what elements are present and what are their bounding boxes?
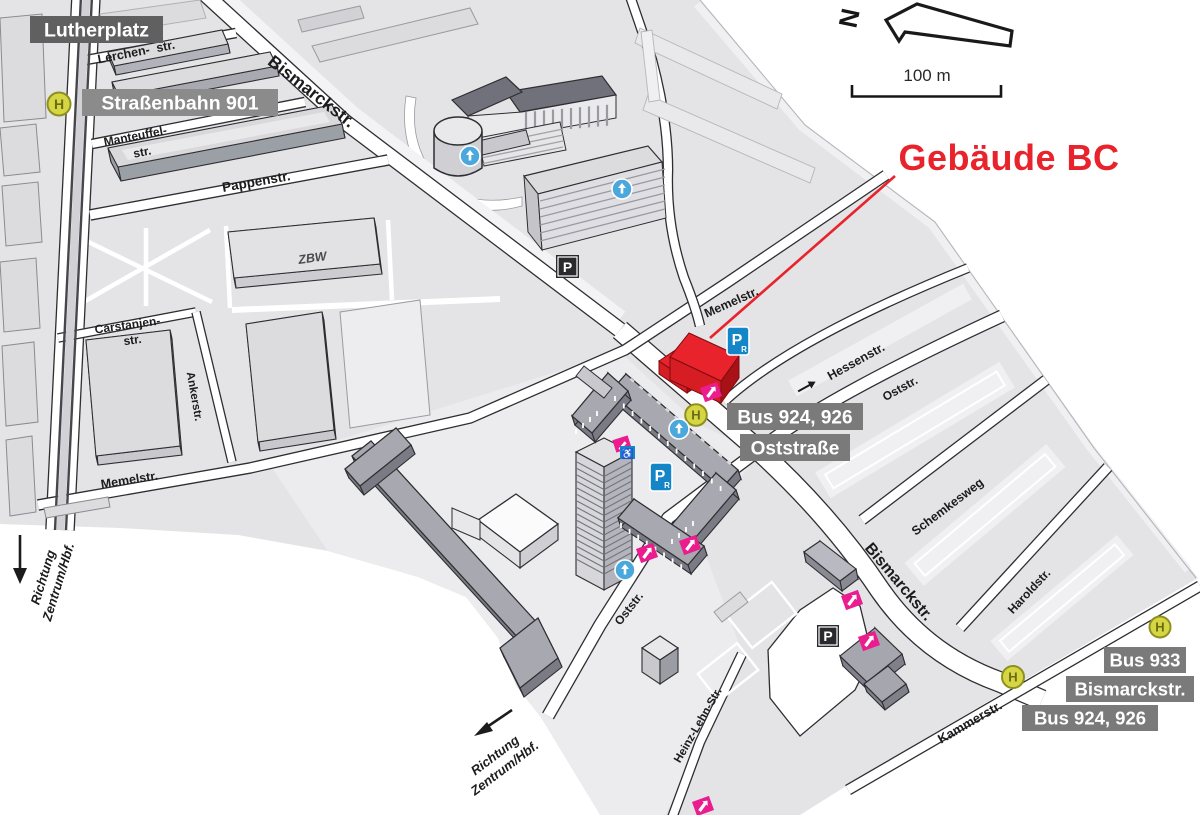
svg-text:Straßenbahn 901: Straßenbahn 901 — [101, 93, 258, 115]
svg-text:Bismarckstr.: Bismarckstr. — [1074, 679, 1185, 700]
svg-text:100 m: 100 m — [903, 66, 950, 85]
svg-text:Oststraße: Oststraße — [751, 438, 840, 459]
svg-text:H: H — [54, 96, 64, 112]
svg-text:H: H — [1008, 670, 1017, 685]
svg-text:str.: str. — [123, 332, 143, 348]
svg-text:H: H — [691, 408, 700, 423]
svg-text:R: R — [741, 345, 747, 354]
svg-text:♿: ♿ — [621, 447, 633, 460]
svg-text:Bus 924, 926: Bus 924, 926 — [1034, 708, 1146, 729]
svg-text:Lutherplatz: Lutherplatz — [44, 20, 149, 42]
svg-text:Bus 924, 926: Bus 924, 926 — [737, 407, 852, 428]
svg-text:R: R — [664, 481, 670, 490]
svg-text:P: P — [823, 628, 832, 644]
svg-text:Bus 933: Bus 933 — [1110, 650, 1181, 671]
svg-text:Gebäude BC: Gebäude BC — [898, 137, 1119, 178]
svg-text:H: H — [1155, 619, 1164, 634]
svg-text:P: P — [563, 259, 572, 275]
